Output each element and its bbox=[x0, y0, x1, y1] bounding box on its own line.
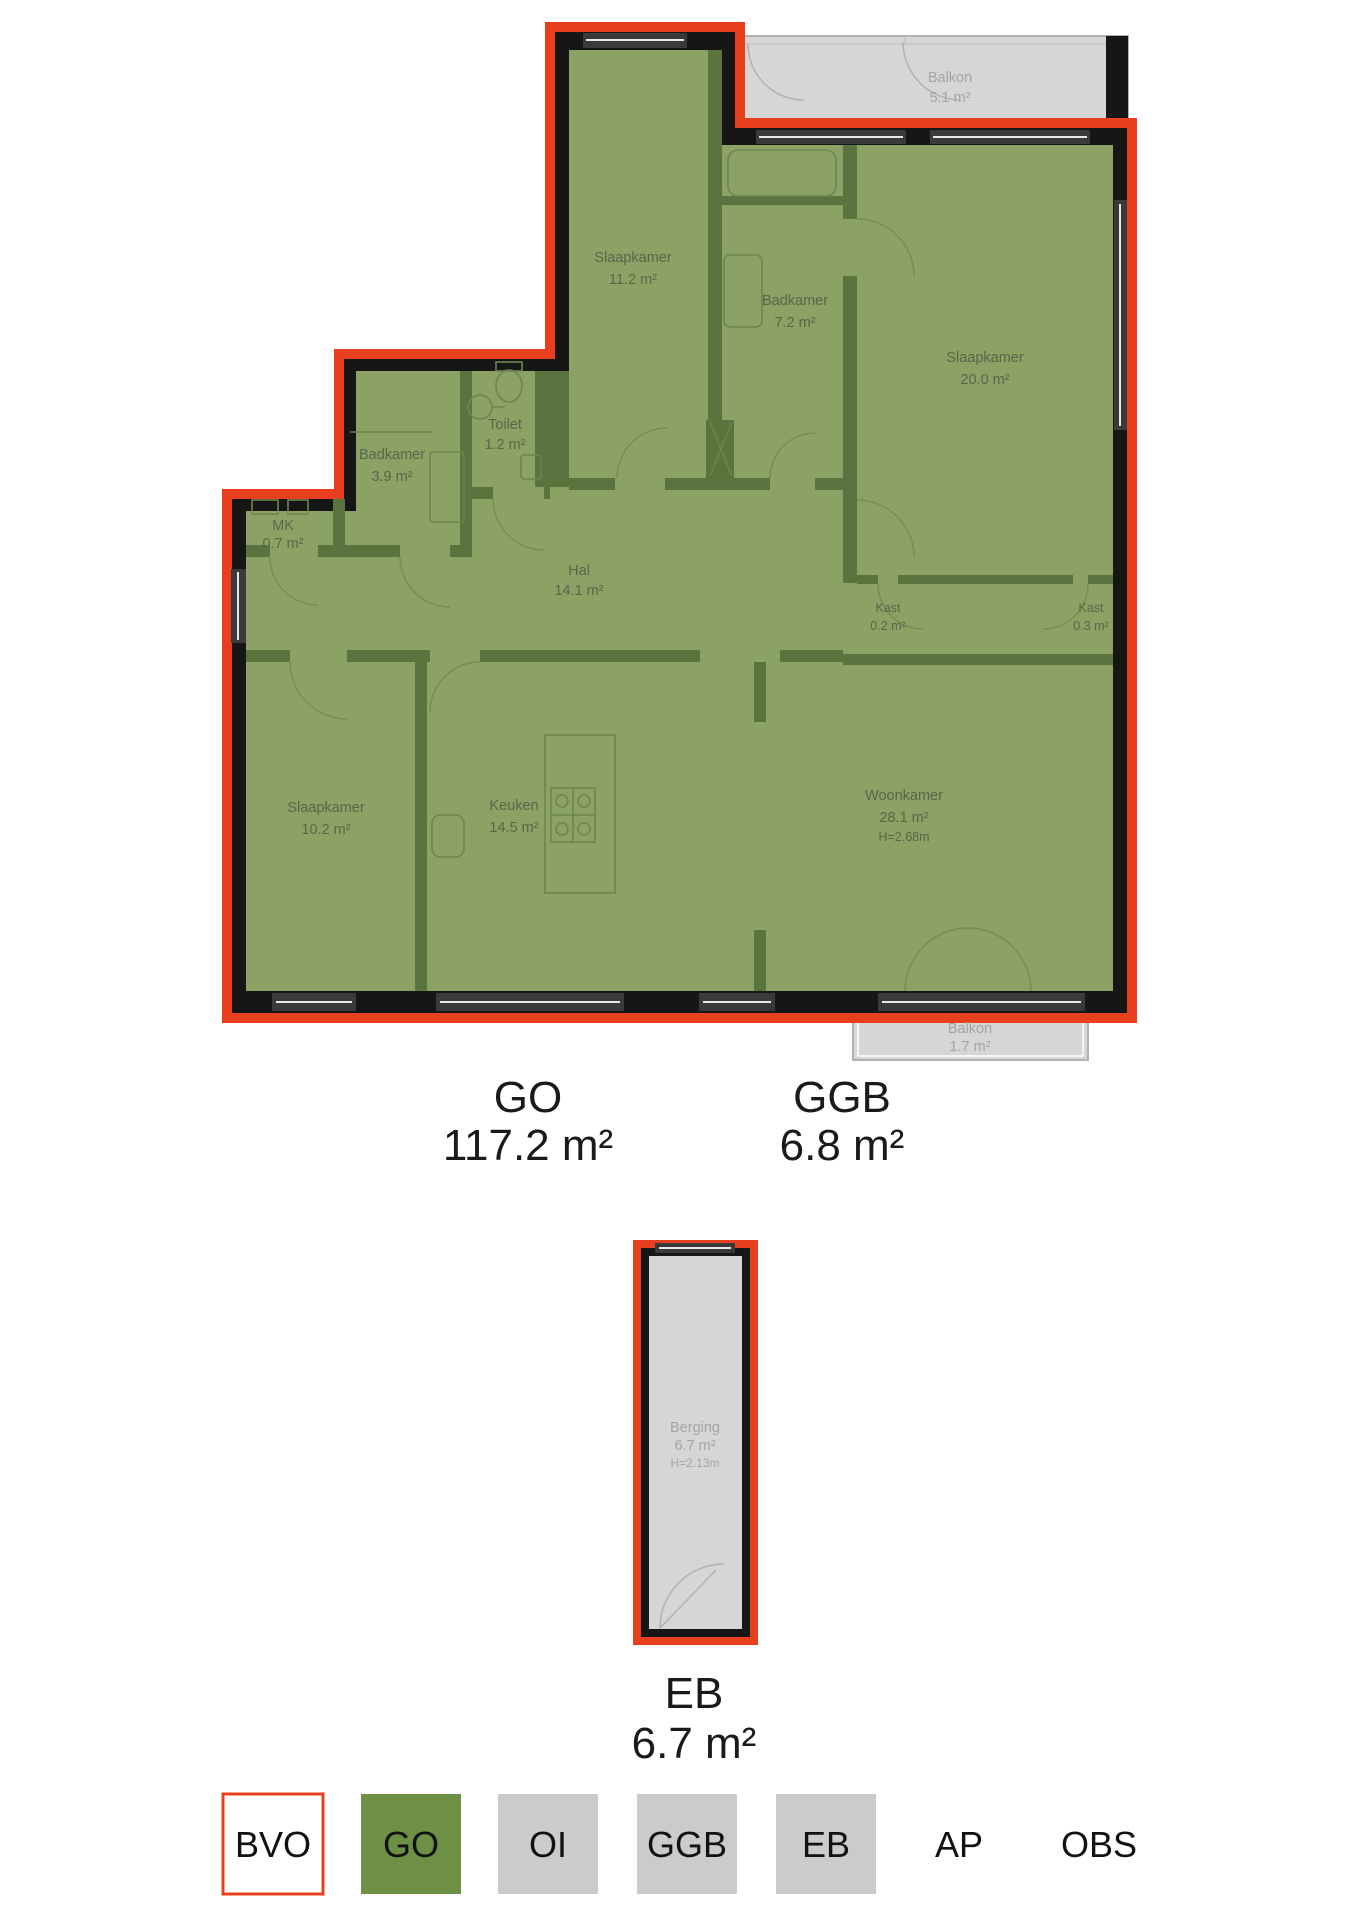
room-label-berging: Berging bbox=[670, 1420, 720, 1436]
room-label-slaapkamer-1: Slaapkamer bbox=[594, 250, 672, 266]
room-area-toilet: 1.2 m² bbox=[484, 437, 525, 453]
window-right bbox=[1114, 200, 1127, 430]
room-area-mk: 0.7 m² bbox=[262, 536, 303, 552]
legend-label-ggb: GGB bbox=[647, 1824, 727, 1865]
room-area-balkon-top: 5.1 m² bbox=[929, 90, 970, 106]
room-area-woonkamer: 28.1 m² bbox=[879, 810, 928, 826]
room-area-kast-1: 0.2 m² bbox=[870, 619, 905, 633]
room-area-berging: 6.7 m² bbox=[674, 1438, 715, 1454]
ggb-value: 6.8 m² bbox=[780, 1121, 905, 1170]
room-area-keuken: 14.5 m² bbox=[489, 820, 538, 836]
go-value: 117.2 m² bbox=[443, 1121, 613, 1170]
legend-label-ap: AP bbox=[935, 1824, 983, 1865]
go-area bbox=[246, 50, 1113, 991]
room-label-badkamer-2: Badkamer bbox=[359, 447, 425, 463]
room-label-woonkamer: Woonkamer bbox=[865, 788, 943, 804]
legend-label-go: GO bbox=[383, 1824, 439, 1865]
room-area-badkamer-2: 3.9 m² bbox=[371, 469, 412, 485]
legend-label-oi: OI bbox=[529, 1824, 567, 1865]
room-label-balkon-top: Balkon bbox=[928, 70, 972, 86]
room-area-slaapkamer-1: 11.2 m² bbox=[609, 272, 657, 288]
room-area-balkon-bottom: 1.7 m² bbox=[949, 1039, 990, 1055]
ggb-label: GGB bbox=[793, 1073, 891, 1122]
legend: BVO GO OI GGB EB AP OBS bbox=[223, 1794, 1137, 1894]
cooktop bbox=[551, 788, 595, 842]
legend-label-bvo: BVO bbox=[235, 1824, 311, 1865]
room-area-kast-2: 0.3 m² bbox=[1073, 619, 1108, 633]
floorplan-canvas: Slaapkamer 11.2 m² Badkamer 7.2 m² Balko… bbox=[0, 0, 1358, 1920]
legend-label-eb: EB bbox=[802, 1824, 850, 1865]
room-label-badkamer-1: Badkamer bbox=[762, 293, 828, 309]
room-area-hal: 14.1 m² bbox=[554, 583, 603, 599]
eb-label: EB bbox=[665, 1669, 724, 1718]
window-top bbox=[583, 33, 687, 48]
room-area-slaapkamer-2: 20.0 m² bbox=[960, 372, 1009, 388]
room-label-slaapkamer-2: Slaapkamer bbox=[946, 350, 1024, 366]
room-label-keuken: Keuken bbox=[489, 798, 538, 814]
room-label-hal: Hal bbox=[568, 563, 590, 579]
room-area-slaapkamer-3: 10.2 m² bbox=[301, 822, 350, 838]
room-label-slaapkamer-3: Slaapkamer bbox=[287, 800, 365, 816]
floorplan-page: Slaapkamer 11.2 m² Badkamer 7.2 m² Balko… bbox=[0, 0, 1358, 1920]
room-label-mk: MK bbox=[272, 518, 294, 534]
room-label-toilet: Toilet bbox=[488, 417, 522, 433]
eb-value: 6.7 m² bbox=[632, 1719, 757, 1768]
room-label-kast-1: Kast bbox=[875, 601, 901, 615]
room-label-kast-2: Kast bbox=[1078, 601, 1104, 615]
legend-label-obs: OBS bbox=[1061, 1824, 1137, 1865]
go-label: GO bbox=[494, 1073, 562, 1122]
window-left bbox=[231, 569, 246, 643]
room-label-balkon-bottom: Balkon bbox=[948, 1021, 992, 1037]
balcony-end-wall bbox=[1106, 36, 1128, 121]
room-height-woonkamer: H=2.68m bbox=[878, 830, 929, 844]
room-area-badkamer-1: 7.2 m² bbox=[774, 315, 815, 331]
room-height-berging: H=2.13m bbox=[670, 1456, 719, 1470]
